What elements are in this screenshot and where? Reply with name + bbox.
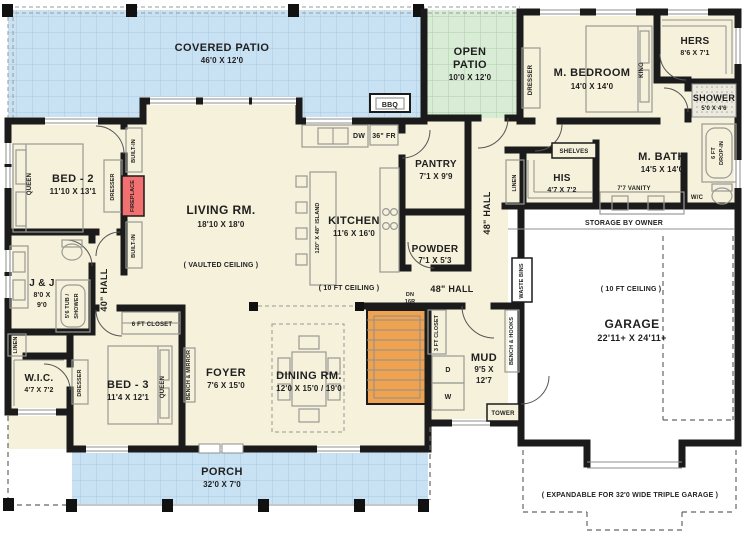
linen-left-label: LINEN (13, 337, 19, 354)
shelves-label: SHELVES (560, 149, 589, 155)
jj-dims2: 9'0 (37, 302, 47, 309)
post (354, 499, 365, 512)
powder-label: POWDER (412, 244, 459, 255)
king-label: KING (639, 62, 645, 78)
builtin-top-label: BUILT-IN (131, 139, 137, 163)
m-bath-label: M. BATH (638, 151, 686, 163)
foyer-dims: 7'6 X 15'0 (207, 381, 245, 390)
column (355, 302, 364, 311)
post (66, 499, 77, 512)
bed3-label: BED - 3 (107, 379, 149, 391)
dn-label: DN (406, 292, 414, 298)
living-label: LIVING RM. (186, 203, 255, 217)
bed2-dresser-label: DRESSER (110, 173, 116, 200)
vanity-label: 7'7 VANITY (617, 186, 650, 192)
post (126, 4, 137, 17)
mud-dims2: 12'7 (476, 376, 492, 385)
m-bath-dims: 14'5 X 14'0 (641, 165, 684, 174)
fireplace-label: FIREPLACE (130, 180, 136, 212)
garage-label: GARAGE (604, 317, 659, 331)
hall48-stairs-label: 48" HALL (430, 284, 473, 294)
hall48-master-label: 48" HALL (482, 191, 492, 234)
tub-shower-label1: 5'6 TUB / (65, 294, 71, 319)
porch-area (72, 451, 428, 504)
dw-label: DW (353, 133, 365, 140)
washer-label: W (445, 394, 452, 401)
post (2, 4, 13, 17)
m-bedroom-label: M. BEDROOM (554, 67, 631, 79)
dropin-label2: DROP-IN (719, 141, 725, 165)
bed2-dims: 11'10 X 13'1 (50, 187, 97, 196)
post (418, 499, 429, 512)
tub-shower-label2: SHOWER (74, 293, 80, 318)
kitchen-label: KITCHEN (328, 215, 380, 227)
wc-label: W/C (691, 195, 704, 201)
open-patio-label1: OPEN (454, 46, 487, 58)
powder-dims: 7'1 X 5'3 (418, 256, 452, 265)
linen-right-label: LINEN (512, 175, 518, 192)
expandable-label: ( EXPANDABLE FOR 32'0 WIDE TRIPLE GARAGE… (542, 492, 718, 499)
living-dims: 18'10 X 18'0 (197, 220, 244, 229)
island-label: 120" X 48" ISLAND (315, 203, 321, 254)
shower-label: SHOWER (693, 93, 736, 103)
pantry-label: PANTRY (415, 159, 457, 170)
builtin-bottom-label: BUILT-IN (131, 234, 137, 258)
mud-label: MUD (471, 352, 497, 364)
bbq-label: BBQ (382, 102, 399, 109)
dropin-label1: 6 FT (711, 147, 717, 159)
porch-label: PORCH (201, 466, 243, 478)
foyer-label: FOYER (206, 367, 246, 379)
post (162, 499, 173, 512)
ceiling-garage-label: ( 10 FT CEILING ) (601, 286, 662, 293)
his-label: HIS (553, 173, 571, 184)
porch-dims: 32'0 X 7'0 (203, 480, 241, 489)
floor-plan-svg: COVERED PATIO 46'0 X 12'0 OPEN PATIO 10'… (0, 0, 750, 543)
hers-dims: 8'6 X 7'1 (680, 50, 709, 57)
jj-label: J & J (29, 278, 54, 289)
wic-dims: 4'7 X 7'2 (24, 387, 53, 394)
closet6-label: 6 FT CLOSET (132, 322, 173, 328)
pantry-dims: 7'1 X 9'9 (419, 172, 453, 181)
bed3-dresser-label: DRESSER (77, 369, 83, 396)
post (288, 4, 299, 17)
stairs (367, 310, 427, 404)
open-patio-label2: PATIO (453, 59, 487, 71)
garage-dims: 22'11+ X 24'11+ (597, 333, 666, 343)
waste-bins-label: WASTE BINS (519, 263, 525, 298)
garage-door-sill (587, 462, 682, 468)
kitchen-dims: 11'6 X 16'0 (333, 229, 375, 238)
bench-hooks-label: BENCH & HOOKS (509, 317, 515, 365)
wic-label: W.I.C. (24, 373, 53, 384)
queen-bed3-label: QUEEN (160, 376, 166, 398)
floor-plan: COVERED PATIO 46'0 X 12'0 OPEN PATIO 10'… (0, 0, 750, 543)
hall40-label: 40" HALL (99, 268, 109, 311)
covered-patio-dims: 46'0 X 12'0 (201, 56, 244, 65)
dining-dims: 12'0 X 15'0 / 19'0 (276, 384, 342, 393)
master-dresser-label: DRESSER (528, 64, 534, 95)
column (249, 302, 258, 311)
shower-dims: 5'0 X 4'6 (701, 106, 727, 112)
ceiling-kitchen-label: ( 10 FT CEILING ) (319, 285, 380, 292)
bench-mirror-label: BENCH & MIRROR (186, 350, 192, 400)
closet3-label: 3 FT CLOSET (434, 314, 440, 351)
mud-dims1: 9'5 X (474, 365, 494, 374)
post (258, 499, 269, 512)
vaulted-label: ( VAULTED CEILING ) (184, 262, 259, 269)
storage-label: STORAGE BY OWNER (585, 220, 663, 227)
dining-label: DINING RM. (276, 370, 342, 382)
tower-label: TOWER (491, 411, 515, 417)
his-dims: 4'7 X 7'2 (547, 187, 576, 194)
hers-label: HERS (681, 36, 710, 47)
m-bedroom-dims: 14'0 X 14'0 (571, 82, 614, 91)
open-patio-dims: 10'0 X 12'0 (449, 73, 492, 82)
covered-patio-label: COVERED PATIO (175, 42, 270, 54)
post (3, 498, 14, 511)
dryer-label: D (445, 367, 450, 374)
jj-dims1: 8'0 X (33, 292, 50, 299)
queen-bed2-label: QUEEN (27, 173, 33, 195)
bed2-label: BED - 2 (52, 173, 94, 185)
risers-label: 16R (405, 299, 415, 305)
fridge-label: 36" FR (372, 133, 396, 140)
bed3-dims: 11'4 X 12'1 (107, 393, 149, 402)
